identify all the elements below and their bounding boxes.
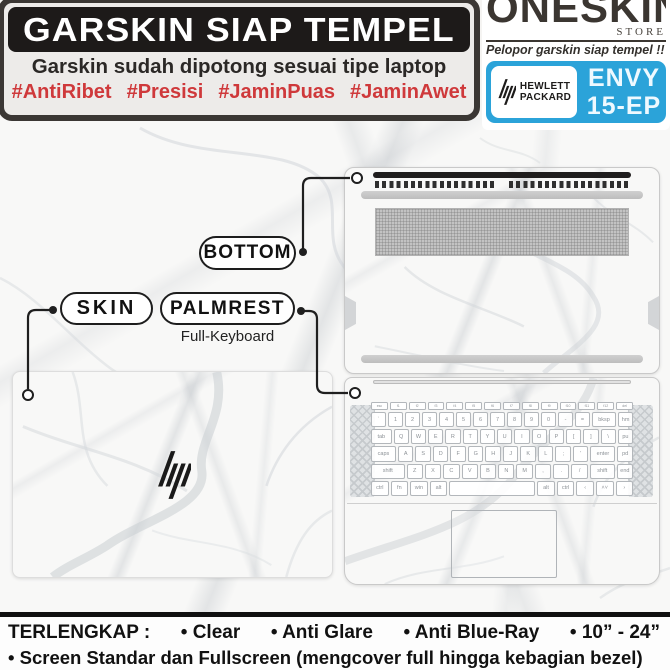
laptop-model-badge: HEWLETT PACKARD ENVY 15-EP <box>486 61 666 123</box>
store-name: ONESKIN <box>486 0 666 28</box>
key: 2 <box>405 412 420 427</box>
hashtag: #JaminPuas <box>218 81 335 104</box>
key: \ <box>601 429 616 444</box>
key: f5 <box>465 402 482 410</box>
key: H <box>485 446 501 461</box>
keyboard: escf1f2f3f4f5f6f7f8f9f10f11f12del`123456… <box>371 402 633 496</box>
key: . <box>553 464 569 479</box>
key: f4 <box>446 402 463 410</box>
vent-mesh-grille <box>375 208 629 256</box>
key: 4 <box>439 412 454 427</box>
key: win <box>410 481 428 496</box>
key: A <box>398 446 414 461</box>
key: 9 <box>524 412 539 427</box>
key: ] <box>583 429 598 444</box>
rubber-foot-bar-top <box>361 191 643 199</box>
key: pu <box>618 429 633 444</box>
header-card: GARSKIN SIAP TEMPEL Garskin sudah dipoto… <box>0 0 480 121</box>
footer-line1: TERLENGKAP : • Clear • Anti Glare • Anti… <box>8 622 662 644</box>
key: caps <box>371 446 396 461</box>
side-vent-left <box>345 296 356 330</box>
footer-heading: TERLENGKAP : <box>8 622 150 644</box>
key: I <box>514 429 529 444</box>
key: U <box>497 429 512 444</box>
hp-brand-line2: PACKARD <box>520 92 571 104</box>
key: T <box>463 429 478 444</box>
key: shift <box>590 464 615 479</box>
key: f2 <box>409 402 426 410</box>
footer-item: • Anti Blue-Ray <box>404 622 540 644</box>
key: f6 <box>484 402 501 410</box>
hp-brand-plate: HEWLETT PACKARD <box>491 66 577 118</box>
key: f11 <box>578 402 595 410</box>
keyboard-deck-line <box>347 503 657 504</box>
keyboard-row: shiftZXCVBNM,./shiftend <box>371 464 633 479</box>
key: 6 <box>473 412 488 427</box>
keyboard-row: capsASDFGHJKL;'enterpd <box>371 446 633 461</box>
model-name: ENVY 15-EP <box>582 61 666 123</box>
hashtag: #JaminAwet <box>350 81 466 104</box>
model-line1: ENVY <box>588 64 660 92</box>
callout-palmrest-label: PALMREST <box>170 298 285 320</box>
key: ˄˅ <box>596 481 614 496</box>
key: f9 <box>541 402 558 410</box>
key: D <box>433 446 449 461</box>
key: X <box>425 464 441 479</box>
lid-skin-panel <box>12 371 333 578</box>
key: f7 <box>503 402 520 410</box>
key: G <box>468 446 484 461</box>
footer: TERLENGKAP : • Clear • Anti Glare • Anti… <box>0 612 670 670</box>
hp-brand-text: HEWLETT PACKARD <box>520 81 571 104</box>
key: alt <box>537 481 555 496</box>
key: pd <box>617 446 633 461</box>
key: alt <box>430 481 448 496</box>
footer-item: • Clear <box>181 622 240 644</box>
key: O <box>532 429 547 444</box>
key <box>449 481 535 496</box>
hp-brand-line1: HEWLETT <box>520 81 571 93</box>
hp-logo-icon <box>155 449 191 501</box>
page-title: GARSKIN SIAP TEMPEL <box>23 11 455 49</box>
key: f1 <box>390 402 407 410</box>
keyboard-row: ctrlfnwinaltaltctrl‹˄˅› <box>371 481 633 496</box>
store-tagline: Pelopor garskin siap tempel !! <box>486 43 666 57</box>
key: shift <box>371 464 405 479</box>
brand-card: ONESKIN STORE Pelopor garskin siap tempe… <box>482 0 670 130</box>
hp-logo-icon <box>497 77 516 107</box>
key: Z <box>407 464 423 479</box>
side-vent-right <box>648 296 659 330</box>
key: 5 <box>456 412 471 427</box>
trackpad-outline <box>451 510 557 578</box>
key: , <box>535 464 551 479</box>
key: Q <box>394 429 409 444</box>
key: › <box>616 481 634 496</box>
key: P <box>549 429 564 444</box>
key: / <box>571 464 587 479</box>
key: N <box>498 464 514 479</box>
keyboard-row: escf1f2f3f4f5f6f7f8f9f10f11f12del <box>371 402 633 410</box>
key: tab <box>371 429 392 444</box>
key: [ <box>566 429 581 444</box>
key: fn <box>391 481 409 496</box>
key: bksp <box>592 412 616 427</box>
product-poster: { "header": { "title": "GARSKIN SIAP TEM… <box>0 0 670 670</box>
key: C <box>443 464 459 479</box>
key: ` <box>371 412 386 427</box>
callout-skin: SKIN <box>60 292 153 325</box>
key: f10 <box>560 402 577 410</box>
key: esc <box>371 402 388 410</box>
laptop-bottom-view <box>344 167 660 374</box>
key: F <box>450 446 466 461</box>
subtitle-text: Garskin sudah dipotong sesuai tipe lapto… <box>4 55 474 79</box>
hashtag: #AntiRibet <box>12 81 112 104</box>
callout-bottom: BOTTOM <box>199 236 296 270</box>
key: ' <box>573 446 589 461</box>
footer-item: • Anti Glare <box>271 622 373 644</box>
key: 1 <box>388 412 403 427</box>
key: 7 <box>490 412 505 427</box>
key: B <box>480 464 496 479</box>
key: Y <box>480 429 495 444</box>
key: ctrl <box>371 481 389 496</box>
key: ‹ <box>576 481 594 496</box>
key: del <box>616 402 633 410</box>
key: V <box>462 464 478 479</box>
key: f3 <box>428 402 445 410</box>
key: 3 <box>422 412 437 427</box>
rubber-foot-bar-bottom <box>361 355 643 363</box>
key: L <box>538 446 554 461</box>
key: ; <box>555 446 571 461</box>
footer-line2: • Screen Standar dan Fullscreen (mengcov… <box>8 647 662 669</box>
callout-skin-label: SKIN <box>77 297 137 320</box>
key: E <box>428 429 443 444</box>
key: R <box>445 429 460 444</box>
callout-bottom-label: BOTTOM <box>204 242 292 264</box>
key: K <box>520 446 536 461</box>
model-line2: 15-EP <box>587 92 661 120</box>
divider-line <box>486 40 666 42</box>
hashtag-row: #AntiRibet #Presisi #JaminPuas #JaminAwe… <box>4 81 474 104</box>
footer-item: • 10” - 24” <box>570 622 660 644</box>
hashtag: #Presisi <box>127 81 204 104</box>
key: f12 <box>597 402 614 410</box>
key: = <box>575 412 590 427</box>
keyboard-row: tabQWERTYUIOP[]\pu <box>371 429 633 444</box>
key: S <box>415 446 431 461</box>
callout-palmrest: PALMREST <box>160 292 295 325</box>
key: J <box>503 446 519 461</box>
key: W <box>411 429 426 444</box>
vent-hole-row <box>509 181 631 188</box>
hinge-slot <box>373 380 631 384</box>
key: 8 <box>507 412 522 427</box>
key: - <box>558 412 573 427</box>
rear-vent-bar <box>373 172 631 178</box>
keyboard-row: `1234567890-=bksphm <box>371 412 633 427</box>
vent-hole-row <box>375 181 497 188</box>
key: hm <box>618 412 633 427</box>
title-banner: GARSKIN SIAP TEMPEL <box>8 7 470 52</box>
laptop-palmrest-view: escf1f2f3f4f5f6f7f8f9f10f11f12del`123456… <box>344 377 660 585</box>
key: 0 <box>541 412 556 427</box>
store-logo: ONESKIN <box>486 0 666 29</box>
key: M <box>516 464 532 479</box>
callout-palmrest-sub: Full-Keyboard <box>160 328 295 345</box>
key: f8 <box>522 402 539 410</box>
key: enter <box>590 446 615 461</box>
key: ctrl <box>557 481 575 496</box>
key: end <box>617 464 633 479</box>
